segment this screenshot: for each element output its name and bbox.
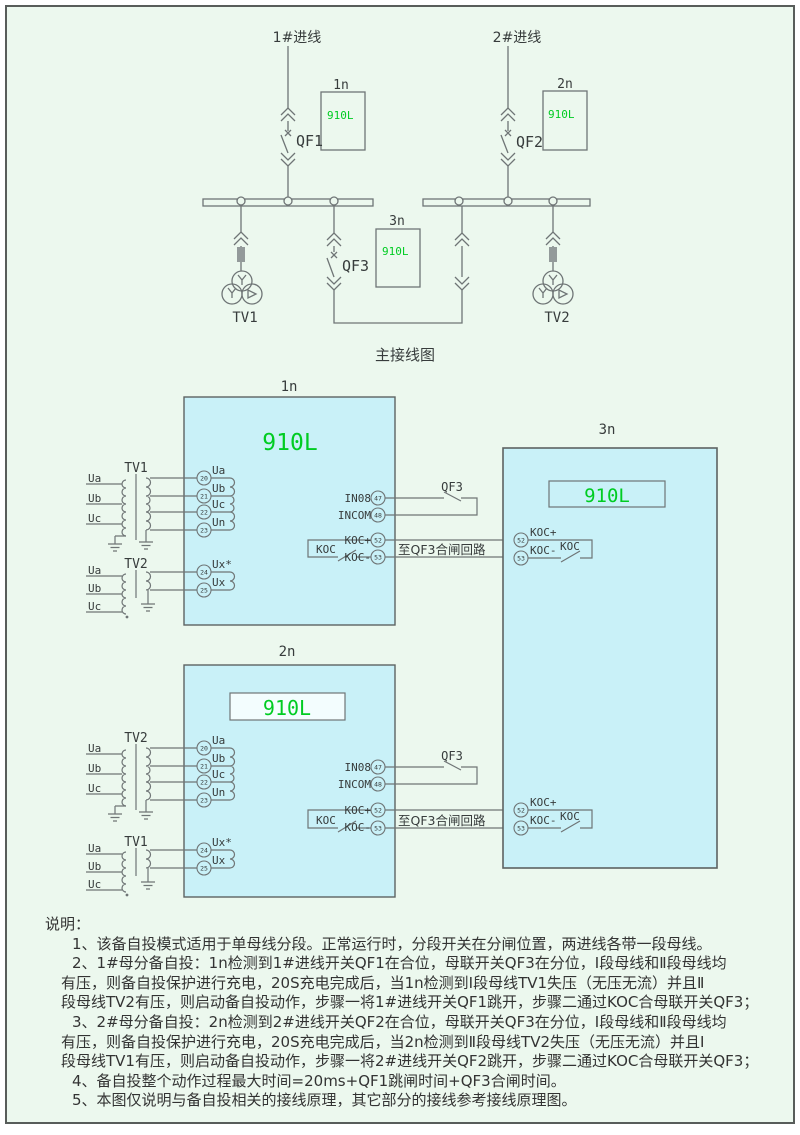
kocm-label: KOC- xyxy=(345,821,372,834)
plug-contact-icon xyxy=(501,153,515,166)
plug-contact-icon xyxy=(546,232,560,245)
relay-box-3n xyxy=(376,229,420,287)
unit-2n-model: 910L xyxy=(263,696,311,720)
terminal-53: 53 xyxy=(371,821,385,835)
bus-node xyxy=(504,197,512,205)
tv2-label: TV2 xyxy=(544,310,569,326)
kocp-label: KOC+ xyxy=(345,804,372,817)
terminal-label: Uc xyxy=(212,498,225,511)
terminal-label: Uc xyxy=(212,768,225,781)
kocp-label: KOC+ xyxy=(530,526,557,539)
svg-text:48: 48 xyxy=(374,781,382,789)
terminal-label: Un xyxy=(212,786,225,799)
incom-label: INCOM xyxy=(338,778,371,791)
plug-contact-icon xyxy=(501,108,515,121)
unit-2n-detail: 2n 910L TV2 Ua Ub Uc TV1 Ua Ub Uc Ua Ub … xyxy=(86,644,514,897)
plug-contact-icon xyxy=(281,153,295,166)
terminal-53: 53 xyxy=(514,821,528,835)
terminal-21: 21 xyxy=(197,489,211,503)
polarity-dot xyxy=(126,894,129,897)
unit-3n-model: 910L xyxy=(584,485,630,507)
terminal-label: Ua xyxy=(212,464,225,477)
fuse-tv1 xyxy=(237,247,245,262)
ground-icon xyxy=(108,810,122,821)
unit-1n-detail: 1n 910L TV1 Ua Ub Uc TV2 Ua Ub Uc Ua Ub … xyxy=(86,379,514,625)
kocm-label: KOC- xyxy=(345,551,372,564)
terminal-47: 47 xyxy=(371,760,385,774)
incoming-line-2-label: 2#进线 xyxy=(493,30,542,46)
svg-text:52: 52 xyxy=(374,537,382,545)
unit-2n-tag: 2n xyxy=(279,644,296,660)
ground-icon xyxy=(139,538,153,549)
in08-label: IN08 xyxy=(345,761,372,774)
svg-text:47: 47 xyxy=(374,495,382,503)
phase-label: Uc xyxy=(88,878,101,891)
svg-text:24: 24 xyxy=(200,847,208,855)
note-line: 有压，则备自投保护进行充电，20S充电完成后，当1n检测到Ⅰ段母线TV1失压（无… xyxy=(61,974,775,994)
breaker-qf2-label: QF2 xyxy=(516,133,543,151)
svg-text:53: 53 xyxy=(517,555,525,563)
bus-node xyxy=(549,197,557,205)
drawing-page: 1#进线 2#进线 QF1 QF2 QF3 1n 2n 3n 910L 910L… xyxy=(0,0,800,1135)
bus-node xyxy=(330,197,338,205)
svg-text:47: 47 xyxy=(374,764,382,772)
phase-label: Uc xyxy=(88,512,101,525)
phase-label: Ub xyxy=(88,762,101,775)
svg-text:22: 22 xyxy=(200,509,208,517)
unit-1n-tv-top-label: TV1 xyxy=(124,461,147,476)
terminal-label: Ux* xyxy=(212,836,232,849)
phase-label: Ua xyxy=(88,842,101,855)
terminal-52: 52 xyxy=(514,803,528,817)
terminal-20: 20 xyxy=(197,471,211,485)
fuse-tv2 xyxy=(549,247,557,262)
tv1-label: TV1 xyxy=(232,310,257,326)
svg-text:53: 53 xyxy=(374,554,382,562)
terminal-22: 22 xyxy=(197,775,211,789)
svg-text:24: 24 xyxy=(200,569,208,577)
note-line: 4、备自投整个动作过程最大时间=20ms+QF1跳闸时间+QF3合闸时间。 xyxy=(72,1072,775,1092)
unit-3n-detail: 3n 910L KOC+ KOC- KOC KOC+ KOC- KOC 52 5… xyxy=(503,422,717,868)
qf3-contact-label: QF3 xyxy=(441,749,463,763)
plug-contact-icon xyxy=(455,233,469,246)
terminal-53: 53 xyxy=(514,551,528,565)
svg-text:21: 21 xyxy=(200,493,208,501)
terminal-48: 48 xyxy=(371,777,385,791)
svg-text:53: 53 xyxy=(374,825,382,833)
terminal-24: 24 xyxy=(197,843,211,857)
plug-contact-icon xyxy=(455,277,469,290)
terminal-25: 25 xyxy=(197,861,211,875)
note-line: 2、1#母分备自投：1n检测到1#进线开关QF1在合位，母联开关QF3在分位，Ⅰ… xyxy=(72,954,775,974)
terminal-53: 53 xyxy=(371,550,385,564)
phase-label: Ua xyxy=(88,472,101,485)
svg-text:52: 52 xyxy=(374,807,382,815)
unit-1n-model: 910L xyxy=(262,430,317,456)
terminal-52: 52 xyxy=(371,533,385,547)
phase-label: Ub xyxy=(88,492,101,505)
unit-1n-tag: 1n xyxy=(281,379,298,395)
plug-contact-icon xyxy=(327,277,341,290)
terminal-label: Ux* xyxy=(212,558,232,571)
terminal-21: 21 xyxy=(197,759,211,773)
ground-icon xyxy=(108,540,122,551)
ground-icon xyxy=(139,808,153,819)
terminal-20: 20 xyxy=(197,741,211,755)
koc-contact-label: KOC xyxy=(316,543,336,556)
svg-text:52: 52 xyxy=(517,537,525,545)
phase-label: Ub xyxy=(88,860,101,873)
terminal-52: 52 xyxy=(514,533,528,547)
note-line: 3、2#母分备自投：2n检测到2#进线开关QF2在合位，母联开关QF3在分位，Ⅰ… xyxy=(72,1013,775,1033)
terminal-47: 47 xyxy=(371,491,385,505)
bus-node xyxy=(284,197,292,205)
terminal-label: Ub xyxy=(212,752,225,765)
svg-text:23: 23 xyxy=(200,527,208,535)
terminal-label: Ua xyxy=(212,734,225,747)
phase-label: Uc xyxy=(88,600,101,613)
note-line: 有压，则备自投保护进行充电，20S充电完成后，当2n检测到Ⅱ段母线TV2失压（无… xyxy=(61,1033,775,1053)
relay-2n-model: 910L xyxy=(548,108,575,121)
kocp-label: KOC+ xyxy=(345,534,372,547)
voltage-transformer-tv2-symbol xyxy=(533,271,573,304)
terminal-label: Ub xyxy=(212,482,225,495)
svg-text:48: 48 xyxy=(374,512,382,520)
koc-contact-label: KOC xyxy=(560,810,580,823)
voltage-transformer-tv1-symbol xyxy=(222,271,262,304)
to-qf3-closing-circuit-label: 至QF3合闸回路 xyxy=(398,813,486,828)
svg-text:21: 21 xyxy=(200,763,208,771)
relay-2n-tag: 2n xyxy=(557,77,573,92)
svg-text:25: 25 xyxy=(200,865,208,873)
svg-text:23: 23 xyxy=(200,797,208,805)
svg-text:20: 20 xyxy=(200,475,208,483)
incom-label: INCOM xyxy=(338,509,371,522)
main-wires xyxy=(241,46,553,323)
phase-label: Ua xyxy=(88,564,101,577)
breaker-qf3-label: QF3 xyxy=(342,257,369,275)
phase-label: Ua xyxy=(88,742,101,755)
relay-1n-tag: 1n xyxy=(333,78,349,93)
bus-node xyxy=(455,197,463,205)
kocm-label: KOC- xyxy=(530,544,557,557)
note-line: 段母线TV2有压，则启动备自投动作，步骤一将1#进线开关QF1跳开，步骤二通过K… xyxy=(61,993,775,1013)
main-wiring-diagram xyxy=(203,46,590,323)
plug-contact-icon xyxy=(234,232,248,245)
relay-1n-model: 910L xyxy=(327,109,354,122)
in08-label: IN08 xyxy=(345,492,372,505)
phase-label: Uc xyxy=(88,782,101,795)
koc-contact-label: KOC xyxy=(560,540,580,553)
terminal-24: 24 xyxy=(197,565,211,579)
note-line: 1、该备自投模式适用于单母线分段。正常运行时，分段开关在分闸位置，两进线各带一段… xyxy=(72,935,775,955)
plug-contact-icon xyxy=(281,108,295,121)
notes-block: 说明： 1、该备自投模式适用于单母线分段。正常运行时，分段开关在分闸位置，两进线… xyxy=(45,915,775,1111)
main-diagram-title: 主接线图 xyxy=(375,346,435,364)
unit-2n-tv-top-label: TV2 xyxy=(124,731,147,746)
terminal-label: Ux xyxy=(212,854,226,867)
terminal-25: 25 xyxy=(197,583,211,597)
svg-text:53: 53 xyxy=(517,825,525,833)
unit-3n-tag: 3n xyxy=(599,422,616,438)
svg-text:20: 20 xyxy=(200,745,208,753)
incoming-line-1-label: 1#进线 xyxy=(273,30,322,46)
kocp-label: KOC+ xyxy=(530,796,557,809)
plug-contact-icon xyxy=(327,233,341,246)
koc-contact-label: KOC xyxy=(316,814,336,827)
terminal-label: Ux xyxy=(212,576,226,589)
unit-1n-tv-bottom-label: TV2 xyxy=(124,557,147,572)
notes-heading: 说明： xyxy=(45,915,775,935)
breaker-qf1-label: QF1 xyxy=(296,132,323,150)
terminal-label: Un xyxy=(212,516,225,529)
svg-text:25: 25 xyxy=(200,587,208,595)
terminal-52: 52 xyxy=(371,803,385,817)
to-qf3-closing-circuit-label: 至QF3合闸回路 xyxy=(398,542,486,557)
kocm-label: KOC- xyxy=(530,814,557,827)
note-line: 段母线TV1有压，则启动备自投动作，步骤一将2#进线开关QF2跳开，步骤二通过K… xyxy=(61,1052,775,1072)
polarity-dot xyxy=(126,616,129,619)
relay-3n-tag: 3n xyxy=(389,214,405,229)
unit-2n-tv-bottom-label: TV1 xyxy=(124,835,147,850)
terminal-23: 23 xyxy=(197,523,211,537)
terminal-48: 48 xyxy=(371,508,385,522)
terminal-23: 23 xyxy=(197,793,211,807)
svg-text:22: 22 xyxy=(200,779,208,787)
relay-3n-model: 910L xyxy=(382,245,409,258)
note-line: 5、本图仅说明与备自投相关的接线原理，其它部分的接线参考接线原理图。 xyxy=(72,1091,775,1111)
ground-icon xyxy=(141,600,155,611)
svg-text:52: 52 xyxy=(517,807,525,815)
ground-icon xyxy=(141,878,155,889)
phase-label: Ub xyxy=(88,582,101,595)
qf3-contact-label: QF3 xyxy=(441,480,463,494)
terminal-22: 22 xyxy=(197,505,211,519)
bus-node xyxy=(237,197,245,205)
main-diagram-labels: 1#进线 2#进线 QF1 QF2 QF3 1n 2n 3n 910L 910L… xyxy=(232,30,575,364)
